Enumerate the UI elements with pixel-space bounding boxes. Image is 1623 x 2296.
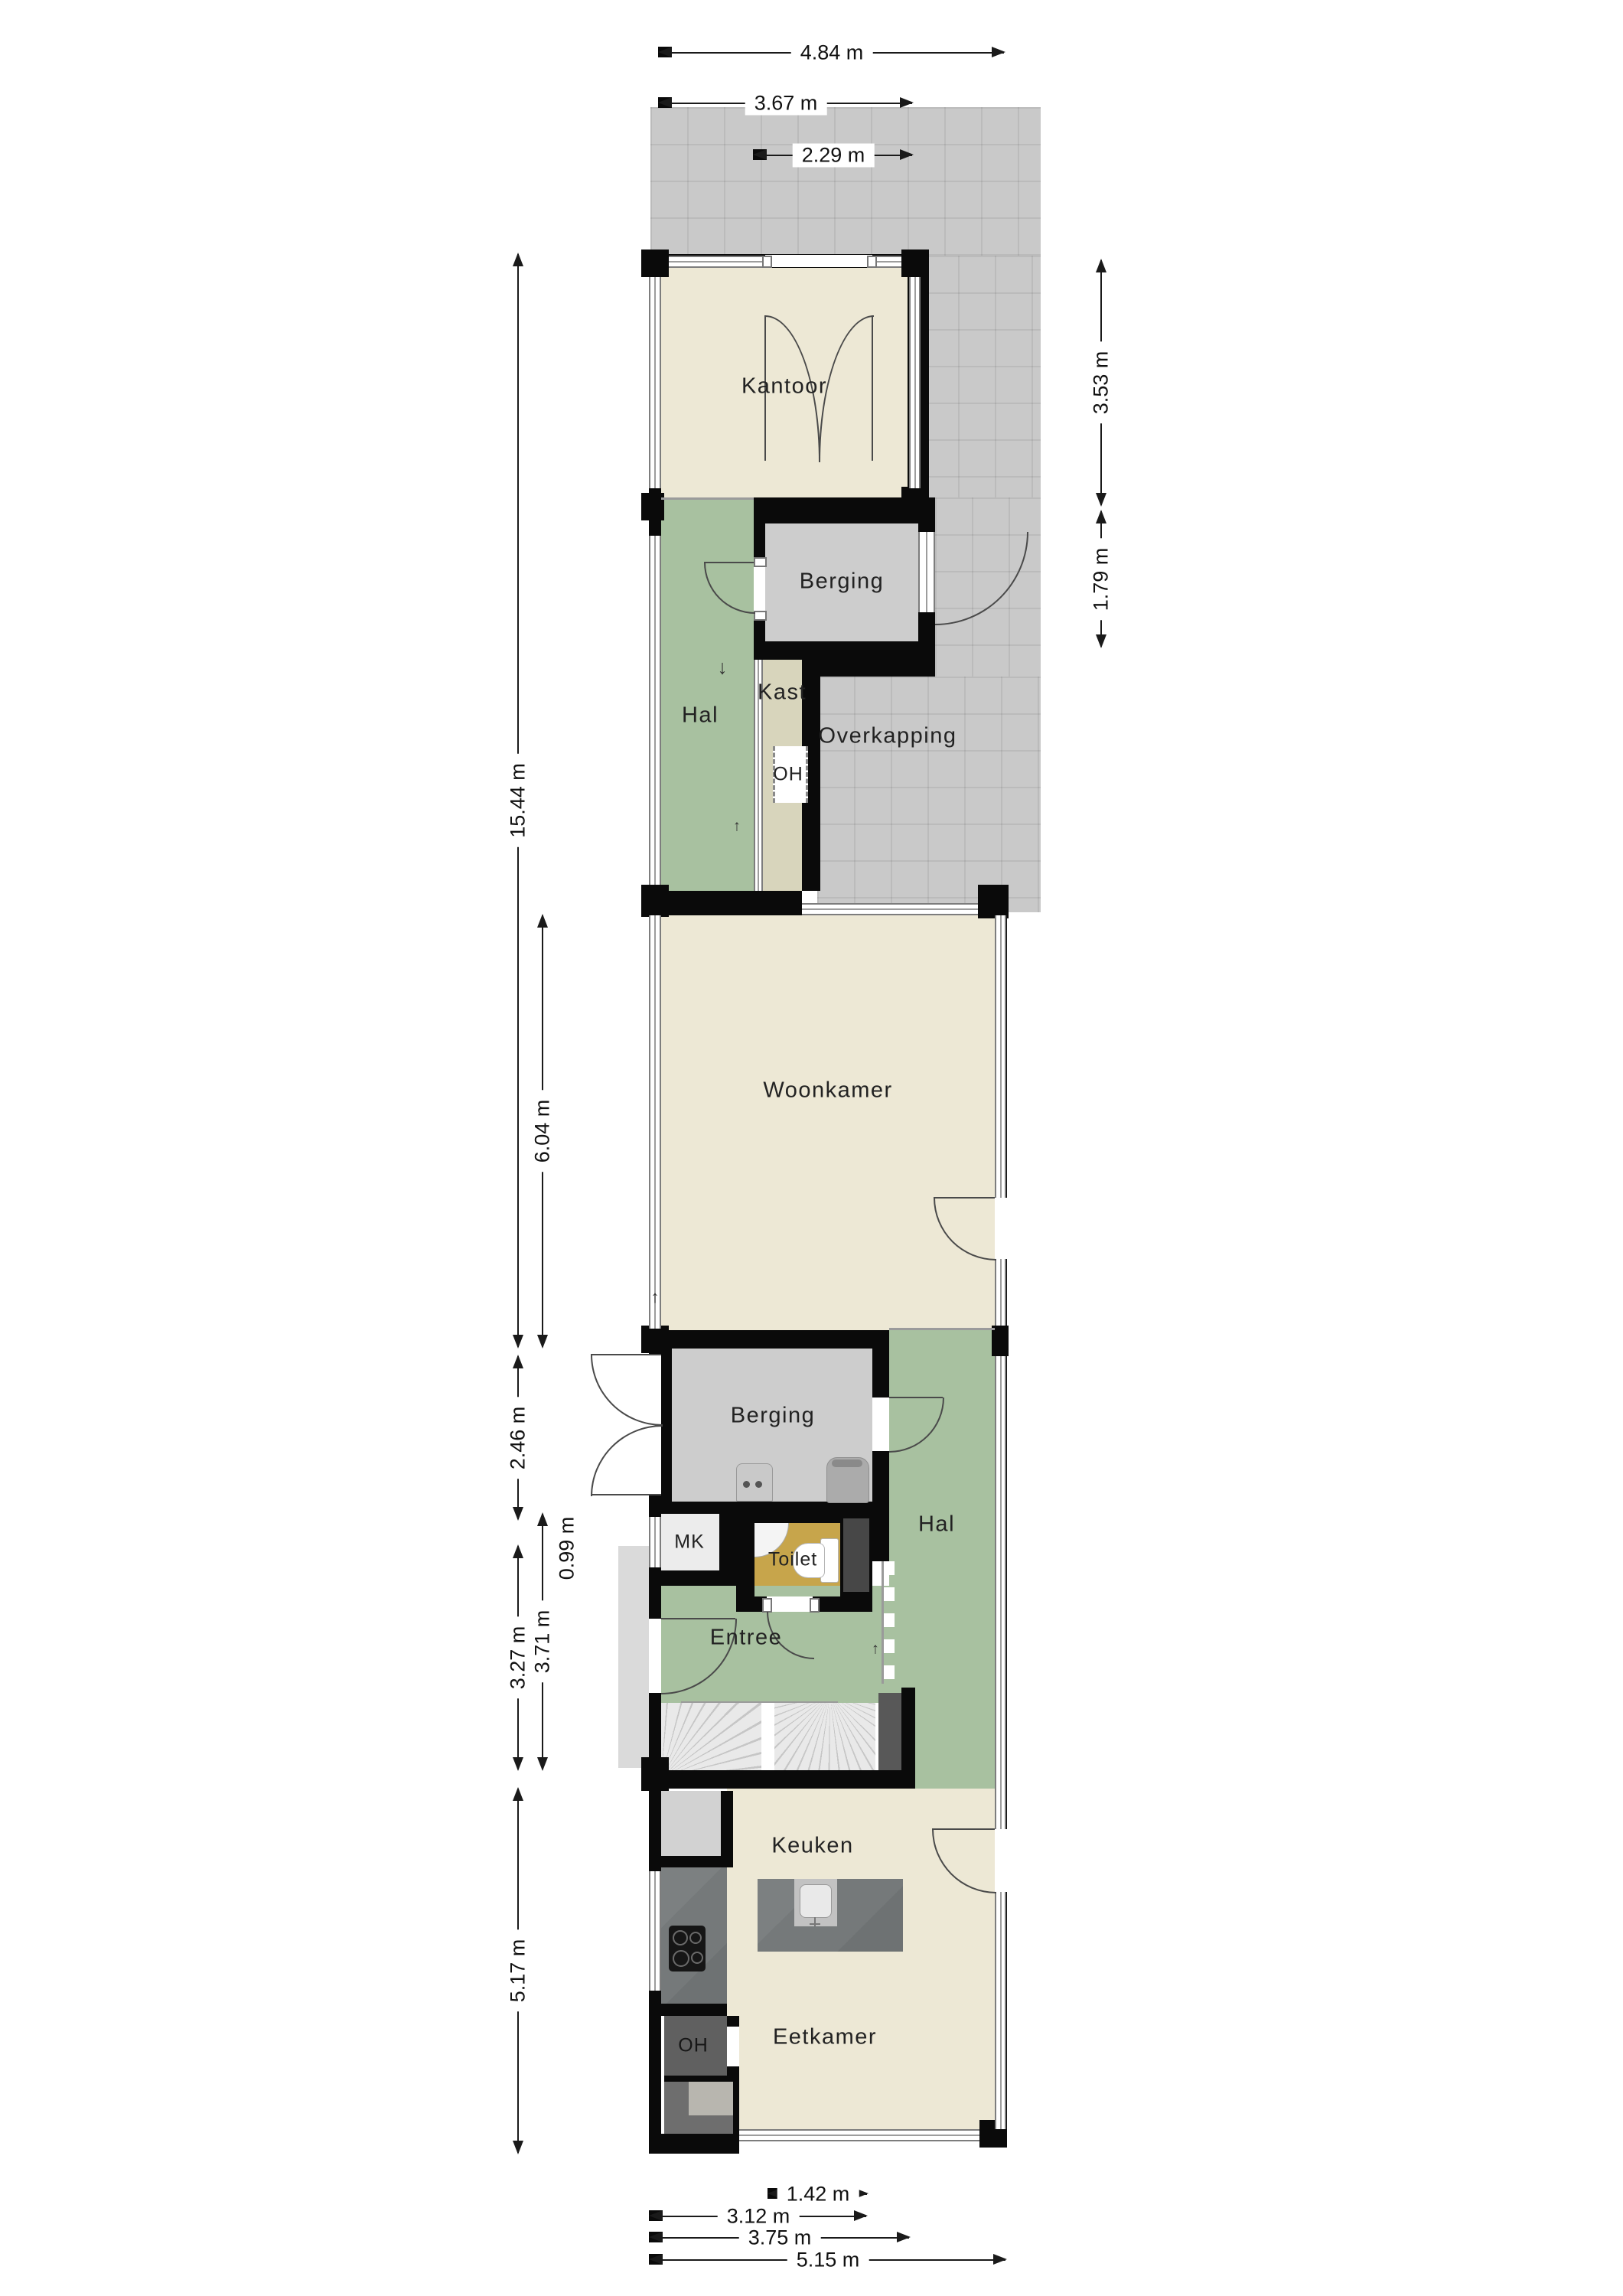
sink-basin xyxy=(800,1884,832,1918)
stairs-winder-right xyxy=(774,1703,875,1770)
sink-tap xyxy=(810,1923,820,1925)
pantry-cabinet xyxy=(661,1791,721,1856)
dimension-label: 4.84 m xyxy=(791,41,873,65)
direction-arrow-icon: ↑ xyxy=(651,1287,660,1307)
door-opening xyxy=(995,1198,1007,1259)
room-label-hal-top: Hal xyxy=(682,703,719,729)
dimension-label: 1.79 m xyxy=(1090,538,1113,620)
dimension-bottom-4: 5.15 m xyxy=(650,2259,1005,2261)
stairs-threshold xyxy=(681,1701,838,1703)
dimension-bottom-3: 3.75 m xyxy=(650,2237,909,2239)
wall-corner xyxy=(641,1757,669,1791)
wall-corner xyxy=(641,1326,669,1353)
wall xyxy=(754,641,935,660)
door-opening xyxy=(754,563,765,612)
dimension-label: 3.53 m xyxy=(1090,342,1113,424)
room-label-mk: MK xyxy=(674,1531,705,1554)
room-label-kast: Kast xyxy=(758,680,807,706)
dimension-top-1: 4.84 m xyxy=(660,52,1004,54)
burner xyxy=(691,1952,703,1964)
dimension-label: 3.27 m xyxy=(507,1617,530,1699)
overkapping-tiles xyxy=(817,677,1041,912)
room-label-entree: Entree xyxy=(710,1626,782,1651)
door-opening xyxy=(767,1596,813,1612)
cooktop-icon xyxy=(669,1926,706,1971)
direction-arrow-icon: ↑ xyxy=(872,1641,879,1658)
threshold xyxy=(661,497,754,500)
threshold xyxy=(889,1328,995,1330)
window xyxy=(649,1871,661,1991)
dimension-top-2: 3.67 m xyxy=(660,103,912,104)
wall-corner xyxy=(641,249,669,277)
dimension-top-3: 2.29 m xyxy=(754,155,912,156)
dimension-right-2: 1.79 m xyxy=(1100,511,1102,647)
door-jamb xyxy=(810,1598,820,1613)
dimension-left-4: 0.99 m xyxy=(566,1514,568,1583)
wall xyxy=(649,1502,872,1514)
wall xyxy=(649,2134,739,2154)
boiler-icon xyxy=(826,1457,869,1503)
dimension-left-1: 15.44 m xyxy=(517,254,519,1347)
dimension-label: 3.71 m xyxy=(531,1601,555,1683)
sliding-door xyxy=(882,1561,895,1684)
wall xyxy=(649,1570,736,1586)
window xyxy=(995,1892,1006,2129)
dimension-label: 15.44 m xyxy=(507,754,530,847)
floor-plan: Kantoor Berging Hal Kast OH Overkapping … xyxy=(0,0,1623,2296)
window xyxy=(649,915,661,1329)
dimension-left-7: 5.17 m xyxy=(517,1789,519,2153)
window xyxy=(739,2129,979,2141)
window xyxy=(909,277,921,488)
window xyxy=(649,277,661,488)
washer-knob xyxy=(755,1481,762,1488)
room-label-berging-top: Berging xyxy=(800,569,884,595)
room-label-oh-top: OH xyxy=(773,764,803,786)
dimension-label: 1.42 m xyxy=(777,2183,859,2206)
door-jamb xyxy=(762,256,772,268)
door-jamb xyxy=(867,256,877,268)
dimension-label: 3.12 m xyxy=(718,2205,800,2229)
direction-arrow-icon: ↓ xyxy=(718,656,728,680)
dimension-left-3: 2.46 m xyxy=(517,1356,519,1519)
wall-corner xyxy=(901,487,929,516)
entry-step xyxy=(618,1546,649,1768)
room-label-oh-bottom: OH xyxy=(678,2035,709,2057)
dimension-right-1: 3.53 m xyxy=(1100,260,1102,505)
door-arc xyxy=(591,1425,663,1496)
room-label-berging-mid: Berging xyxy=(731,1404,815,1429)
window xyxy=(995,915,1006,1198)
dimension-left-6: 3.71 m xyxy=(542,1514,543,1769)
dimension-left-2: 6.04 m xyxy=(542,915,543,1347)
door-jamb xyxy=(754,557,767,567)
room-label-kantoor: Kantoor xyxy=(741,374,827,400)
window xyxy=(995,1259,1006,1326)
wall xyxy=(649,891,802,915)
wall xyxy=(736,1523,754,1596)
boiler-cap xyxy=(832,1459,862,1467)
dimension-label: 3.67 m xyxy=(745,92,827,116)
room-woonkamer xyxy=(661,915,995,1330)
dimension-left-5: 3.27 m xyxy=(517,1546,519,1769)
stairs-divider xyxy=(761,1703,774,1770)
wall xyxy=(901,1688,915,1789)
door-jamb xyxy=(762,1598,772,1613)
window xyxy=(802,903,978,915)
burner xyxy=(673,1930,688,1945)
room-label-overkapping: Overkapping xyxy=(819,724,957,749)
burner xyxy=(689,1932,702,1944)
wall xyxy=(721,1791,733,1861)
wall-corner xyxy=(901,249,929,277)
oh-door-opening xyxy=(727,2027,739,2066)
window xyxy=(995,1356,1006,1829)
room-label-eetkamer: Eetkamer xyxy=(773,2025,877,2050)
stair-side-block xyxy=(878,1693,901,1770)
dimension-label: 3.75 m xyxy=(739,2226,821,2250)
wall xyxy=(733,2076,739,2134)
dimension-bottom-2: 3.12 m xyxy=(650,2216,866,2217)
door-opening xyxy=(995,1829,1007,1892)
wall xyxy=(649,2004,727,2016)
wall xyxy=(992,1326,1009,1356)
terrace-tiles xyxy=(650,107,1041,256)
burner xyxy=(673,1950,689,1967)
island-sink-icon xyxy=(794,1879,837,1926)
dimension-label: 0.99 m xyxy=(556,1508,579,1590)
wall xyxy=(649,1330,889,1349)
dimension-label: 2.46 m xyxy=(507,1397,530,1479)
window-mk xyxy=(649,1517,661,1567)
utility-shelf xyxy=(689,2082,733,2115)
room-label-hal-mid: Hal xyxy=(918,1512,955,1538)
berging-exterior-door xyxy=(918,532,935,612)
wall xyxy=(649,1856,733,1867)
terrace-tiles xyxy=(921,256,1041,497)
door-jamb xyxy=(754,611,767,621)
window xyxy=(649,536,661,885)
front-door-opening xyxy=(649,1619,661,1693)
washer-knob xyxy=(743,1481,750,1488)
window xyxy=(669,256,765,268)
duct-niche xyxy=(843,1518,869,1592)
wall-corner xyxy=(641,885,669,917)
sink-tap xyxy=(814,1917,816,1926)
door-arc xyxy=(591,1355,663,1426)
wall xyxy=(664,2076,739,2082)
dimension-label: 5.17 m xyxy=(507,1930,530,2012)
dimension-label: 6.04 m xyxy=(531,1091,555,1172)
dimension-label: 2.29 m xyxy=(793,144,875,168)
door-opening xyxy=(765,255,872,267)
wall xyxy=(649,1770,915,1789)
dimension-bottom-1: 1.42 m xyxy=(769,2193,867,2195)
room-label-keuken: Keuken xyxy=(771,1834,853,1859)
direction-arrow-icon: ↑ xyxy=(733,818,741,836)
stairs-winder-left xyxy=(661,1703,761,1770)
room-label-woonkamer: Woonkamer xyxy=(763,1078,892,1104)
wall-corner xyxy=(978,885,1009,918)
room-label-toilet: Toilet xyxy=(768,1549,817,1571)
dimension-label: 5.15 m xyxy=(787,2249,869,2272)
washer-icon xyxy=(736,1463,773,1502)
door-opening xyxy=(872,1397,889,1451)
wall xyxy=(802,660,935,677)
